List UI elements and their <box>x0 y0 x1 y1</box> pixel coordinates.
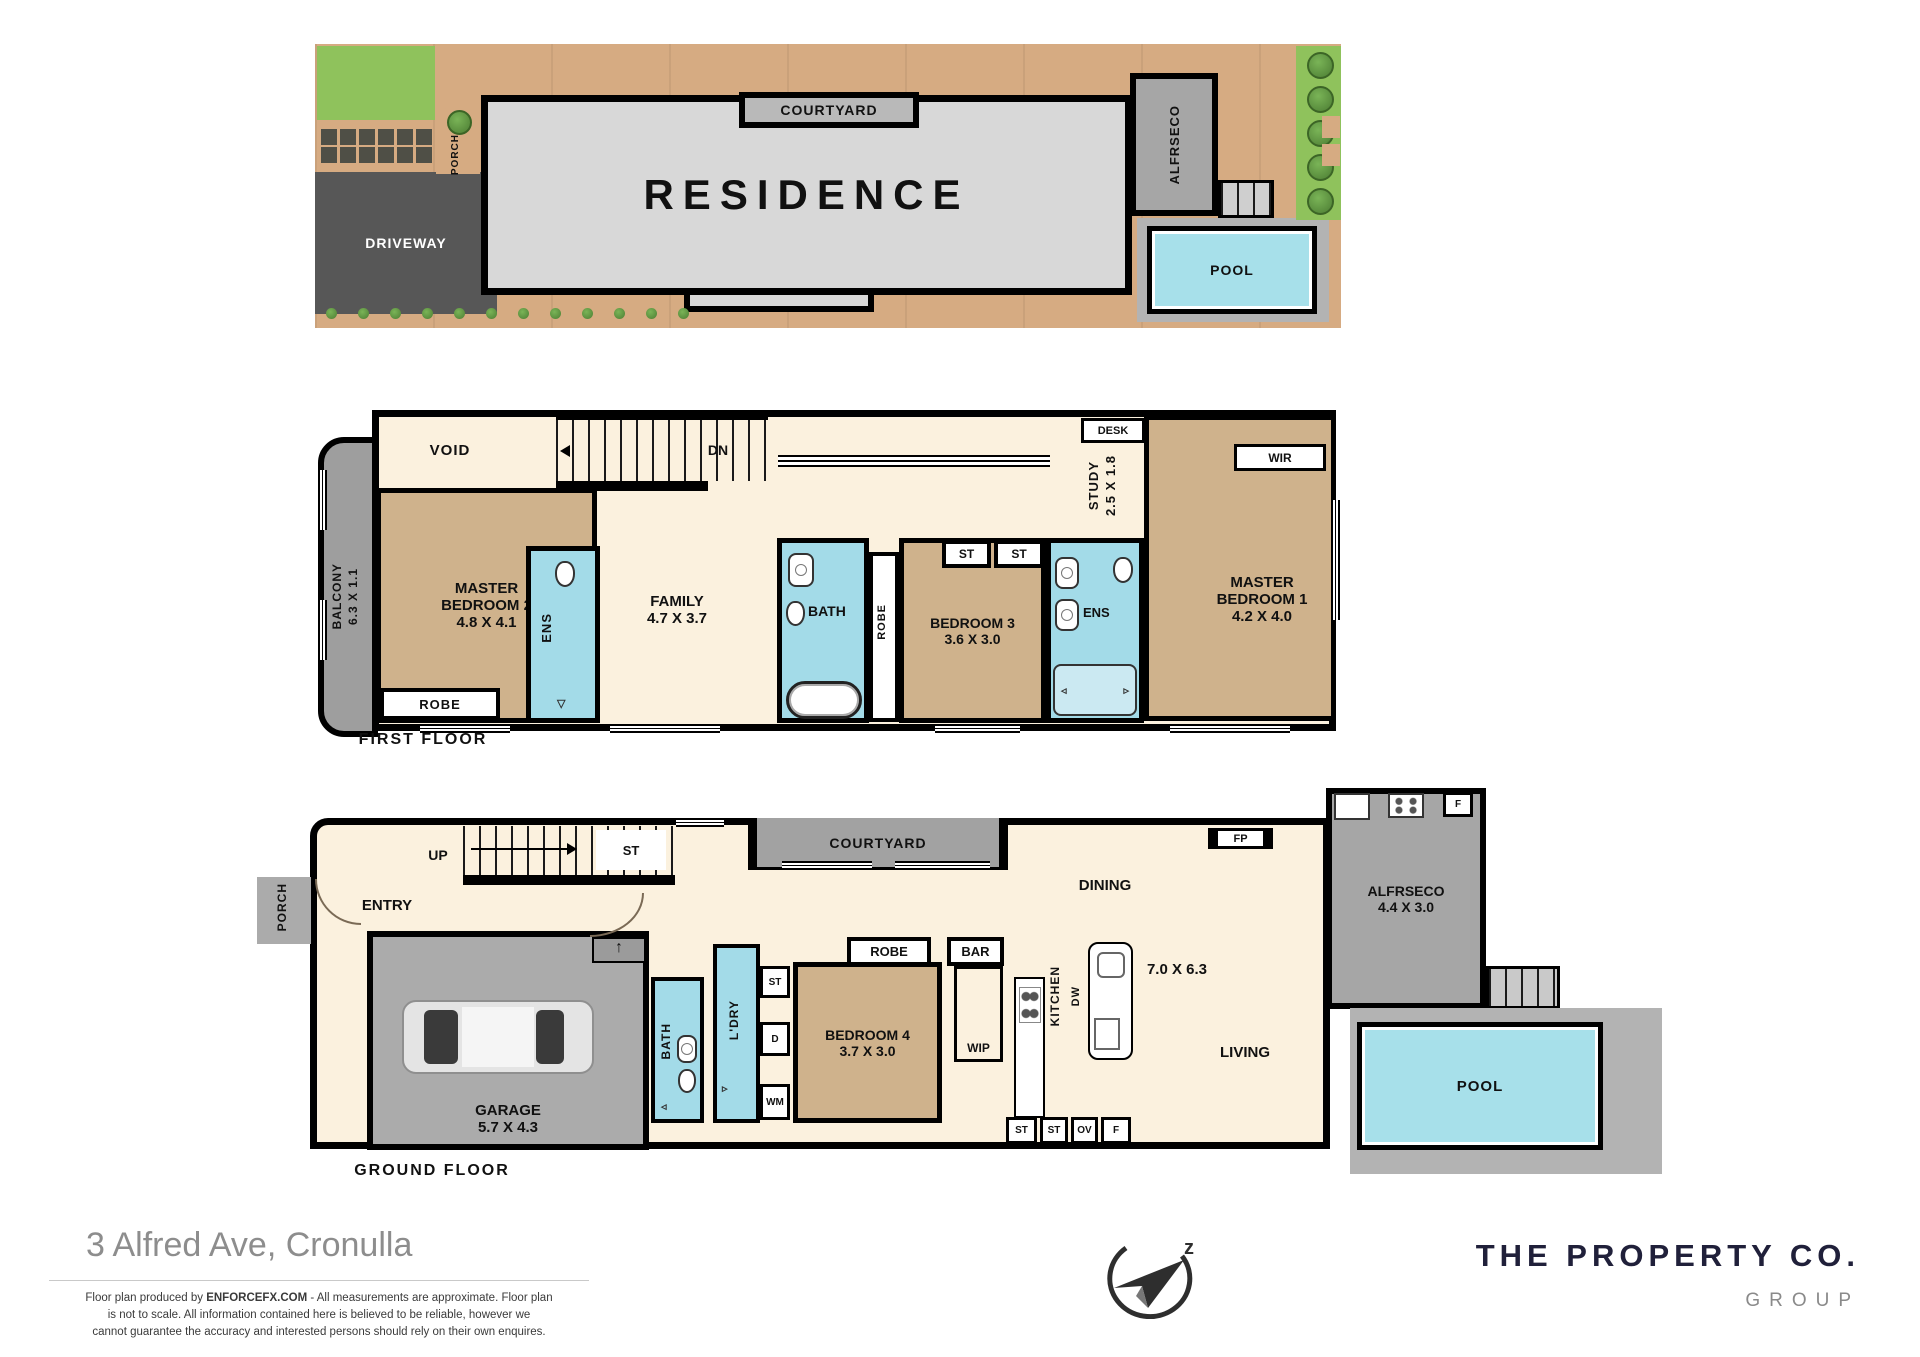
planter-box <box>397 147 413 163</box>
gf-up-text: UP <box>428 847 447 863</box>
site-alfresco-label: ALFRSECO <box>1167 105 1182 185</box>
gf-living-label: LIVING <box>1203 1043 1287 1061</box>
planter-box <box>359 129 375 145</box>
stair-arrow-icon <box>560 445 570 457</box>
gf-fireplace: FP <box>1208 828 1273 849</box>
window <box>318 470 327 530</box>
gf-kitchen-counter <box>1014 977 1045 1118</box>
window <box>895 861 990 870</box>
gf-fridge-alfresco: F <box>1443 792 1473 817</box>
ff-mb1-dims: 4.2 X 4.0 <box>1232 608 1292 625</box>
gf-wip-pantry: WIP <box>954 966 1003 1062</box>
ff-ens-left-label: ENS <box>539 613 554 643</box>
ff-ensuite-left: ENS ▽ <box>526 546 600 723</box>
ff-st-2: ST <box>994 540 1044 568</box>
window <box>318 600 327 660</box>
ff-st-1: ST <box>942 540 991 568</box>
shrub-icon <box>390 308 401 319</box>
ff-mb1-line2: BEDROOM 1 <box>1217 591 1308 608</box>
planter-box <box>416 147 432 163</box>
ff-st1-label: ST <box>959 547 974 561</box>
planter-box <box>321 129 337 145</box>
ff-mb1-line1: MASTER <box>1230 574 1293 591</box>
site-porch-strip: PORCH <box>436 108 480 174</box>
site-courtyard-label: COURTYARD <box>780 102 877 118</box>
ff-family-name: FAMILY <box>650 593 704 610</box>
driveway-label: DRIVEWAY <box>365 235 446 251</box>
disclaimer-pre: Floor plan produced by <box>85 1292 206 1304</box>
ff-study-label: STUDY 2.5 X 1.8 <box>1076 432 1128 540</box>
ff-void-label: VOID <box>408 440 492 460</box>
shrub-icon <box>582 308 593 319</box>
ff-title: FIRST FLOOR <box>337 730 509 750</box>
gf-ov-label: OV <box>1077 1125 1091 1136</box>
gf-garage-step: ↑ <box>592 937 646 963</box>
gf-wip-label: WIP <box>967 1041 990 1055</box>
gf-st-a-label: ST <box>1015 1125 1028 1136</box>
ff-wir-label: WIR <box>1268 451 1291 465</box>
ff-bed3-name: BEDROOM 3 <box>930 615 1015 631</box>
cooktop-icon <box>1019 987 1041 1023</box>
shrub-icon <box>518 308 529 319</box>
basin-icon <box>677 1035 697 1063</box>
gf-dryer-label: D <box>771 1034 778 1045</box>
shower-tray-icon: ◃ ▹ <box>1053 664 1137 716</box>
planter-box <box>340 129 356 145</box>
tree-icon <box>1307 86 1334 113</box>
gf-oven: OV <box>1071 1117 1098 1144</box>
ff-study-dims: 2.5 X 1.8 <box>1103 455 1118 516</box>
shower-icon: ▹ <box>722 1082 728 1095</box>
shower-icon: ▽ <box>557 697 565 710</box>
ff-void-text: VOID <box>430 442 471 459</box>
gf-laundry-label: L'DRY <box>727 1000 741 1040</box>
gf-entry-text: ENTRY <box>362 897 412 914</box>
ff-wir: WIR <box>1234 444 1326 471</box>
enforcefx-logo: z <box>1096 1226 1208 1326</box>
brand-name: THE PROPERTY CO. <box>1380 1238 1860 1280</box>
gf-st-stairs-label: ST <box>623 843 640 858</box>
gf-kitchen-label: KITCHEN <box>1048 966 1062 1026</box>
ff-dn-text: DN <box>708 442 728 458</box>
site-driveway: DRIVEWAY <box>315 172 497 314</box>
ff-title-text: FIRST FLOOR <box>359 731 488 749</box>
ff-mb2-dims: 4.8 X 4.1 <box>456 614 516 631</box>
ff-balcony-dims: 6.3 X 1.1 <box>346 568 360 625</box>
ff-bed3-dims: 3.6 X 3.0 <box>944 631 1000 647</box>
site-pool-label: POOL <box>1210 262 1254 278</box>
gf-pool-label: POOL <box>1457 1078 1504 1095</box>
shrub-icon <box>486 308 497 319</box>
gf-st-box: ST <box>760 966 790 998</box>
ff-desk-top-label: DESK <box>1098 425 1129 437</box>
gf-bed4-name: BEDROOM 4 <box>825 1027 910 1043</box>
shower-icon: ◃ <box>1061 684 1067 697</box>
brand-name-text: THE PROPERTY CO. <box>1476 1238 1860 1273</box>
car-rear-window <box>424 1010 458 1064</box>
gf-open-dims: 7.0 X 6.3 <box>1136 960 1218 978</box>
gf-st-stairs: ST <box>596 830 666 870</box>
gf-dining-text: DINING <box>1079 877 1132 894</box>
planter-box <box>378 129 394 145</box>
window <box>935 724 1020 733</box>
footer-address: 3 Alfred Ave, Cronulla <box>86 1226 646 1268</box>
gf-robe-bed4: ROBE <box>847 937 931 966</box>
gf-title: GROUND FLOOR <box>346 1161 518 1181</box>
floor-plan-canvas: DRIVEWAY PORCH RESIDENCE COURTYARD ALFRS… <box>0 0 1920 1357</box>
car-windshield <box>536 1010 564 1064</box>
gf-bath: BATH ◃ <box>651 977 704 1123</box>
toilet-icon <box>786 601 805 626</box>
ff-ens-right-label: ENS <box>1083 605 1110 620</box>
ff-balcony-label: BALCONY 6.3 X 1.1 <box>330 563 360 629</box>
site-lawn-left <box>317 46 435 120</box>
bathtub-icon <box>786 681 862 719</box>
gf-porch-label: PORCH <box>275 883 289 931</box>
ff-desk-top: DESK <box>1081 418 1145 443</box>
basin-icon <box>788 553 814 587</box>
gf-fp-label: FP <box>1233 833 1247 845</box>
car-roof <box>462 1007 534 1067</box>
gf-st-box-label: ST <box>769 977 782 988</box>
shrub-icon <box>326 308 337 319</box>
gf-living-text: LIVING <box>1220 1044 1270 1061</box>
gf-bar: BAR <box>947 937 1004 966</box>
gf-up-label: UP <box>418 846 458 864</box>
ff-robe-mb2: ROBE <box>380 688 500 720</box>
gf-alfresco: ALFRSECO 4.4 X 3.0 <box>1326 788 1486 1009</box>
disclaimer-line-2: is not to scale. All information contain… <box>49 1307 589 1324</box>
gf-stair-wall <box>463 875 675 885</box>
car-icon <box>402 1000 594 1074</box>
ff-robe-strip: ROBE <box>869 552 899 722</box>
dishwasher-icon <box>1094 1018 1120 1050</box>
gf-alfresco-dims: 4.4 X 3.0 <box>1378 899 1434 915</box>
stair-run-line <box>471 848 567 850</box>
site-paver-tile <box>1322 116 1340 138</box>
gf-alfresco-name: ALFRSECO <box>1368 883 1445 899</box>
window <box>1331 500 1340 620</box>
gf-garage-name: GARAGE <box>475 1102 541 1119</box>
gf-dining-label: DINING <box>1063 876 1147 894</box>
tree-icon <box>1307 52 1334 79</box>
disclaimer-line-1: Floor plan produced by ENFORCEFX.COM - A… <box>49 1290 589 1307</box>
gf-stairs-right <box>1486 966 1560 1009</box>
ff-mb1-label: MASTER BEDROOM 1 4.2 X 4.0 <box>1192 570 1332 628</box>
window <box>782 861 872 870</box>
cooktop-icon <box>1388 793 1424 818</box>
shrub-icon <box>422 308 433 319</box>
gf-laundry: L'DRY ▹ <box>713 944 760 1123</box>
basin-icon <box>1055 599 1079 631</box>
brand-subtitle: GROUP <box>1380 1290 1860 1316</box>
disclaimer-post: - All measurements are approximate. Floo… <box>307 1292 552 1304</box>
site-pool: POOL <box>1147 226 1317 314</box>
basin-icon <box>1055 557 1079 589</box>
shrub-icon <box>646 308 657 319</box>
gf-st-b-label: ST <box>1048 1125 1061 1136</box>
ff-family-label: FAMILY 4.7 X 3.7 <box>610 588 744 632</box>
site-paver-tile <box>1322 144 1340 166</box>
gf-bar-label: BAR <box>961 944 989 959</box>
disclaimer-line-3: cannot guarantee the accuracy and intere… <box>49 1324 589 1341</box>
gf-pool: POOL <box>1357 1022 1603 1150</box>
gf-garage-dims: 5.7 X 4.3 <box>478 1119 538 1136</box>
shrub-icon <box>678 308 689 319</box>
gf-courtyard-label: COURTYARD <box>829 835 926 851</box>
footer-divider <box>49 1280 589 1281</box>
shower-icon: ▹ <box>1123 684 1129 697</box>
window <box>676 818 724 827</box>
gf-title-text: GROUND FLOOR <box>354 1162 510 1180</box>
gf-fridge: F <box>1101 1117 1131 1144</box>
gf-bed4-dims: 3.7 X 3.0 <box>839 1043 895 1059</box>
shower-icon: ◃ <box>661 1100 667 1113</box>
ff-bath: BATH <box>777 538 869 723</box>
gf-bath-label: BATH <box>659 1023 673 1059</box>
sink-icon <box>1097 952 1125 978</box>
ff-bath-label: BATH <box>808 603 846 619</box>
gf-open-dims-text: 7.0 X 6.3 <box>1147 961 1207 978</box>
tree-icon <box>1307 188 1334 215</box>
ff-family-dims: 4.7 X 3.7 <box>647 610 707 627</box>
ff-mb2-line2: BEDROOM 2 <box>441 597 532 614</box>
window <box>610 724 720 733</box>
window <box>778 455 1050 467</box>
ff-ensuite-right: ENS ◃ ▹ <box>1046 538 1144 723</box>
tree-icon <box>447 110 472 135</box>
residence-label: RESIDENCE <box>643 171 969 219</box>
ff-st2-label: ST <box>1011 547 1026 561</box>
footer-disclaimer: Floor plan produced by ENFORCEFX.COM - A… <box>49 1290 589 1341</box>
planter-box <box>359 147 375 163</box>
gf-island <box>1088 942 1133 1060</box>
planter-box <box>321 147 337 163</box>
disclaimer-brand: ENFORCEFX.COM <box>206 1292 307 1304</box>
site-porch-label: PORCH <box>450 134 461 175</box>
ff-dn-label: DN <box>698 441 738 459</box>
shrub-icon <box>550 308 561 319</box>
planter-box <box>378 147 394 163</box>
gf-f-alfresco-label: F <box>1455 799 1461 810</box>
ff-balcony: BALCONY 6.3 X 1.1 <box>318 437 378 737</box>
gf-robe-label: ROBE <box>870 944 908 959</box>
shrub-icon <box>358 308 369 319</box>
toilet-icon <box>555 561 575 587</box>
ff-robe-strip-label: ROBE <box>876 604 888 640</box>
site-stairs <box>1218 180 1274 218</box>
site-alfresco: ALFRSECO <box>1130 73 1218 216</box>
gf-porch: PORCH <box>257 877 311 944</box>
planter-box <box>416 129 432 145</box>
toilet-icon <box>1113 557 1133 583</box>
planter-box <box>340 147 356 163</box>
svg-text:z: z <box>1184 1237 1194 1259</box>
gf-dryer-box: D <box>760 1022 790 1056</box>
sink-icon <box>1334 793 1370 820</box>
shrub-icon <box>454 308 465 319</box>
ff-balcony-name: BALCONY <box>330 563 344 629</box>
stair-arrow-icon <box>567 843 577 855</box>
brand-subtitle-text: GROUP <box>1745 1290 1860 1311</box>
planter-box <box>397 129 413 145</box>
shrub-icon <box>614 308 625 319</box>
gf-st-a: ST <box>1006 1117 1037 1144</box>
ff-study-name: STUDY <box>1086 461 1101 510</box>
site-planter-beds <box>317 120 433 172</box>
gf-f-kitchen-label: F <box>1113 1125 1119 1136</box>
ff-mb2-line1: MASTER <box>455 580 518 597</box>
gf-dw-label: DW <box>1070 986 1082 1006</box>
gf-bedroom-4: BEDROOM 4 3.7 X 3.0 <box>793 962 942 1123</box>
gf-washing-machine-box: WM <box>760 1084 790 1120</box>
site-courtyard: COURTYARD <box>739 92 919 128</box>
footer-address-text: 3 Alfred Ave, Cronulla <box>86 1226 412 1264</box>
gf-st-b: ST <box>1040 1117 1068 1144</box>
gf-wm-label: WM <box>766 1097 784 1108</box>
window <box>1170 724 1290 733</box>
ff-robe-mb2-label: ROBE <box>419 697 461 712</box>
toilet-icon <box>678 1069 696 1093</box>
